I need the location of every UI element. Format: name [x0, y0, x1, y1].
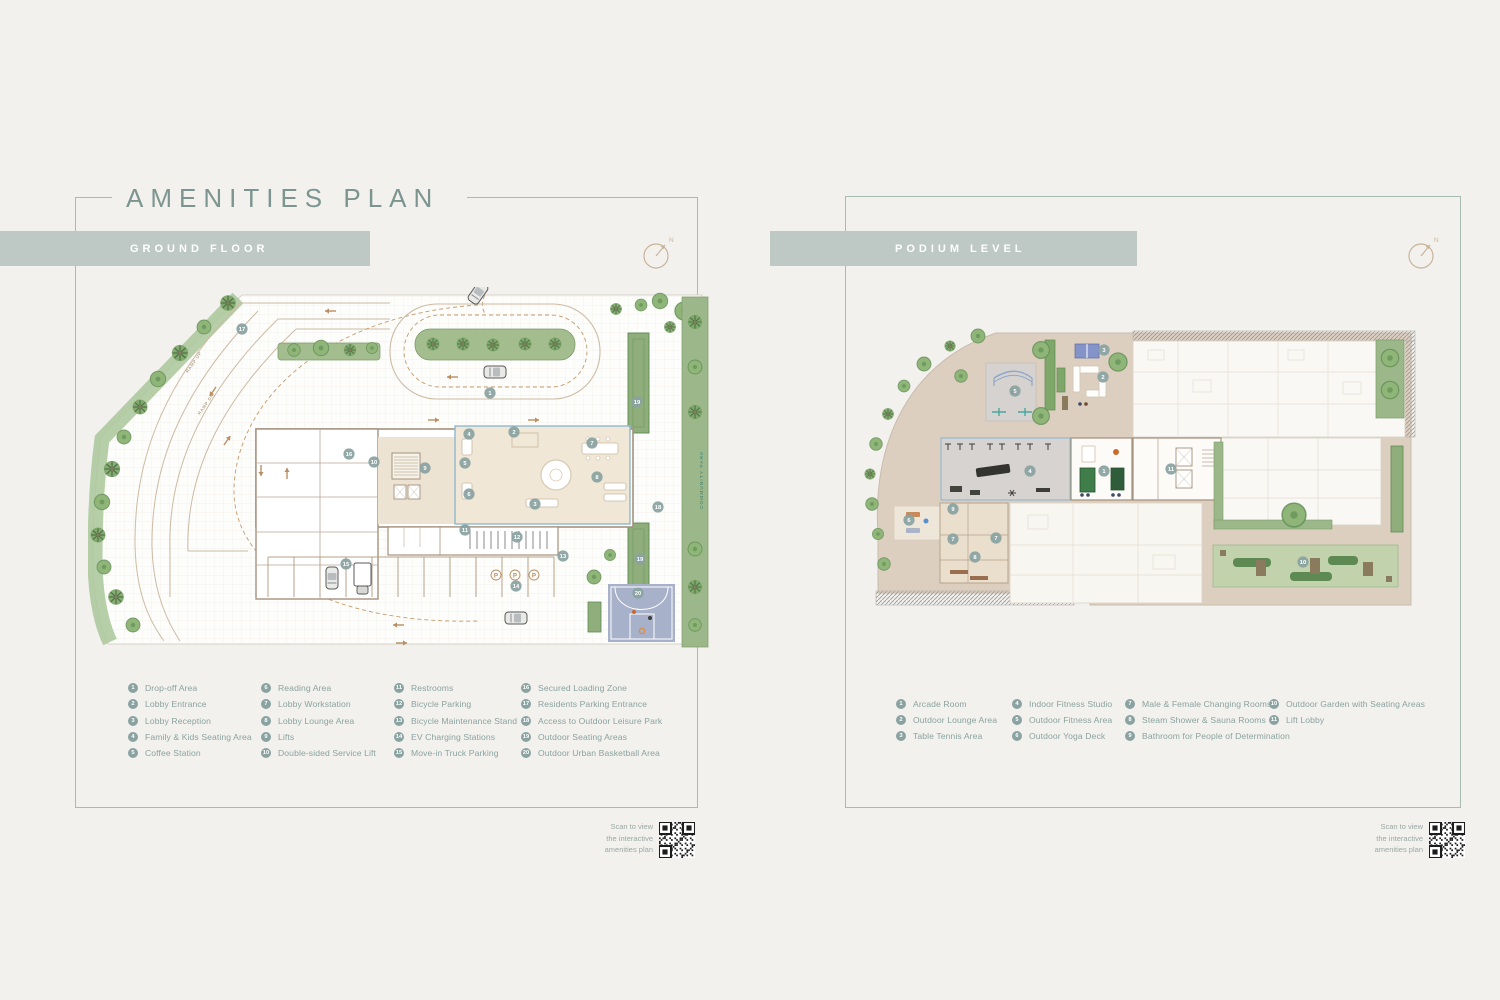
- legend-item: 9Lifts: [261, 729, 376, 745]
- qr-caption-line: amenities plan: [1343, 844, 1423, 856]
- ground-floor-banner: GROUND FLOOR: [0, 231, 370, 266]
- svg-text:12: 12: [514, 535, 520, 541]
- legend-number-badge: 5: [1012, 715, 1022, 725]
- svg-text:18: 18: [655, 505, 662, 511]
- svg-text:7: 7: [590, 441, 593, 447]
- svg-text:N: N: [669, 237, 674, 244]
- legend-label: Residents Parking Entrance: [538, 699, 647, 709]
- legend-number-badge: 5: [128, 748, 138, 758]
- plan-marker: 6: [903, 514, 914, 525]
- svg-text:16: 16: [346, 452, 353, 458]
- plan-marker: 20: [632, 587, 643, 598]
- legend-label: Outdoor Yoga Deck: [1029, 731, 1105, 741]
- legend-number-badge: 4: [1012, 699, 1022, 709]
- ground-floor-plan: RAMP UP RAMP DN: [88, 287, 710, 663]
- legend-label: EV Charging Stations: [411, 732, 495, 742]
- legend-label: Outdoor Seating Areas: [538, 732, 627, 742]
- legend-number-badge: 8: [1125, 715, 1135, 725]
- plan-marker: 5: [459, 457, 470, 468]
- legend-item: 1Arcade Room: [896, 696, 997, 712]
- legend-label: Bathroom for People of Determination: [1142, 731, 1290, 741]
- legend-label: Double-sided Service Lift: [278, 748, 376, 758]
- legend-item: 2Outdoor Lounge Area: [896, 712, 997, 728]
- qr-caption-line: Scan to view: [1343, 821, 1423, 833]
- svg-text:2: 2: [512, 430, 515, 436]
- legend-item: 7Male & Female Changing Rooms: [1125, 696, 1290, 712]
- legend-item: 2Lobby Entrance: [128, 696, 252, 712]
- svg-text:14: 14: [513, 584, 520, 590]
- legend-item: 7Lobby Workstation: [261, 696, 376, 712]
- legend-column: 7Male & Female Changing Rooms8Steam Show…: [1125, 696, 1290, 744]
- qr-caption: Scan to viewthe interactiveamenities pla…: [1343, 821, 1423, 856]
- svg-text:15: 15: [343, 562, 350, 568]
- legend-label: Male & Female Changing Rooms: [1142, 699, 1271, 709]
- svg-text:17: 17: [239, 327, 245, 333]
- legend-number-badge: 1: [896, 699, 906, 709]
- compass-icon: N: [1395, 226, 1451, 282]
- legend-number-badge: 8: [261, 716, 271, 726]
- svg-text:P: P: [494, 572, 498, 579]
- indoor-fitness-studio: [941, 438, 1070, 500]
- legend-item: 1Drop-off Area: [128, 680, 252, 696]
- table-tennis-area: [1075, 344, 1099, 358]
- legend-number-badge: 12: [394, 699, 404, 709]
- legend-number-badge: 10: [1269, 699, 1279, 709]
- legend-item: 6Outdoor Yoga Deck: [1012, 728, 1112, 744]
- plan-marker: 5: [1009, 385, 1020, 396]
- legend-number-badge: 15: [394, 748, 404, 758]
- legend-item: 6Reading Area: [261, 680, 376, 696]
- legend-item: 4Indoor Fitness Studio: [1012, 696, 1112, 712]
- legend-label: Lobby Entrance: [145, 699, 207, 709]
- legend-number-badge: 19: [521, 732, 531, 742]
- plan-marker: 19: [634, 553, 645, 564]
- svg-text:7: 7: [994, 536, 997, 542]
- plan-marker: 10: [368, 456, 379, 467]
- legend-item: 5Outdoor Fitness Area: [1012, 712, 1112, 728]
- legend-number-badge: 18: [521, 716, 531, 726]
- qr-caption-line: Scan to view: [573, 821, 653, 833]
- legend-number-badge: 1: [128, 683, 138, 693]
- svg-text:P: P: [532, 572, 536, 579]
- legend-item: 11Lift Lobby: [1269, 712, 1425, 728]
- plan-marker: 3: [1098, 344, 1109, 355]
- plan-marker: 10: [1297, 556, 1308, 567]
- legend-label: Secured Loading Zone: [538, 683, 627, 693]
- svg-text:2: 2: [1101, 375, 1104, 381]
- plan-marker: 12: [511, 531, 522, 542]
- plan-marker: 16: [343, 448, 354, 459]
- plan-marker: 13: [557, 550, 568, 561]
- legend-number-badge: 7: [1125, 699, 1135, 709]
- legend-label: Family & Kids Seating Area: [145, 732, 252, 742]
- legend-label: Drop-off Area: [145, 683, 197, 693]
- plan-marker: 2: [508, 426, 519, 437]
- legend-item: 12Bicycle Parking: [394, 696, 517, 712]
- legend-item: 11Restrooms: [394, 680, 517, 696]
- legend-item: 10Double-sided Service Lift: [261, 745, 376, 761]
- plan-marker: 17: [236, 323, 247, 334]
- svg-text:19: 19: [634, 400, 641, 406]
- legend-item: 15Move-in Truck Parking: [394, 745, 517, 761]
- svg-text:19: 19: [637, 557, 644, 563]
- legend-item: 8Steam Shower & Sauna Rooms: [1125, 712, 1290, 728]
- qr-caption-line: the interactive: [1343, 833, 1423, 845]
- legend-item: 13Bicycle Maintenance Stand: [394, 713, 517, 729]
- plan-marker: 7: [586, 437, 597, 448]
- legend-number-badge: 17: [521, 699, 531, 709]
- podium-level-banner: PODIUM LEVEL: [770, 231, 1137, 266]
- legend-label: Outdoor Lounge Area: [913, 715, 997, 725]
- car-drop-off: [484, 366, 506, 378]
- legend-label: Access to Outdoor Leisure Park: [538, 716, 662, 726]
- ground-floor-banner-label: GROUND FLOOR: [130, 243, 268, 255]
- legend-column: 10Outdoor Garden with Seating Areas11Lif…: [1269, 696, 1425, 728]
- plan-marker: 4: [1024, 465, 1035, 476]
- legend-number-badge: 11: [394, 683, 404, 693]
- compass-icon: N: [630, 226, 686, 282]
- legend-item: 20Outdoor Urban Basketball Area: [521, 745, 662, 761]
- legend-number-badge: 2: [896, 715, 906, 725]
- qr-code: [659, 822, 695, 858]
- legend-column: 4Indoor Fitness Studio5Outdoor Fitness A…: [1012, 696, 1112, 744]
- legend-item: 9Bathroom for People of Determination: [1125, 728, 1290, 744]
- legend-label: Steam Shower & Sauna Rooms: [1142, 715, 1266, 725]
- plan-marker: 11: [459, 524, 470, 535]
- svg-text:P: P: [513, 572, 517, 579]
- legend-number-badge: 7: [261, 699, 271, 709]
- legend-number-badge: 10: [261, 748, 271, 758]
- plan-marker: 14: [510, 580, 521, 591]
- legend-column: 11Restrooms12Bicycle Parking13Bicycle Ma…: [394, 680, 517, 761]
- legend-label: Reading Area: [278, 683, 331, 693]
- svg-text:7: 7: [951, 537, 954, 543]
- svg-text:20: 20: [635, 591, 641, 597]
- legend-label: Lobby Lounge Area: [278, 716, 354, 726]
- svg-text:10: 10: [1300, 560, 1306, 566]
- legend-number-badge: 14: [394, 732, 404, 742]
- legend-item: 3Lobby Reception: [128, 713, 252, 729]
- legend-label: Arcade Room: [913, 699, 967, 709]
- legend-number-badge: 2: [128, 699, 138, 709]
- plan-marker: 2: [1097, 371, 1108, 382]
- plan-marker: 6: [463, 488, 474, 499]
- legend-label: Indoor Fitness Studio: [1029, 699, 1112, 709]
- plan-marker: 1: [484, 387, 495, 398]
- qr-caption-line: the interactive: [573, 833, 653, 845]
- community-park-strip: COMMUNITY PARK: [682, 297, 708, 647]
- plan-marker: 8: [969, 551, 980, 562]
- plan-marker: 4: [463, 428, 474, 439]
- legend-number-badge: 20: [521, 748, 531, 758]
- legend-number-badge: 16: [521, 683, 531, 693]
- svg-text:COMMUNITY PARK: COMMUNITY PARK: [699, 451, 704, 510]
- legend-item: 5Coffee Station: [128, 745, 252, 761]
- svg-text:13: 13: [560, 554, 567, 560]
- lift-lobby: [1133, 438, 1221, 500]
- legend-number-badge: 6: [261, 683, 271, 693]
- legend-column: 6Reading Area7Lobby Workstation8Lobby Lo…: [261, 680, 376, 761]
- plan-marker: 18: [652, 501, 663, 512]
- legend-number-badge: 9: [261, 732, 271, 742]
- legend-label: Outdoor Garden with Seating Areas: [1286, 699, 1425, 709]
- legend-number-badge: 3: [896, 731, 906, 741]
- legend-number-badge: 4: [128, 732, 138, 742]
- svg-text:11: 11: [1168, 467, 1175, 473]
- car-bottom-lane: [505, 612, 527, 624]
- plan-marker: 9: [947, 503, 958, 514]
- plan-marker: 11: [1165, 463, 1176, 474]
- legend-item: 18Access to Outdoor Leisure Park: [521, 713, 662, 729]
- plan-marker: 8: [591, 471, 602, 482]
- outdoor-yoga-deck: [894, 506, 940, 540]
- legend-label: Lift Lobby: [1286, 715, 1324, 725]
- page-title: AMENITIES PLAN: [112, 183, 467, 214]
- plan-marker: 15: [340, 558, 351, 569]
- legend-label: Outdoor Fitness Area: [1029, 715, 1112, 725]
- legend-number-badge: 6: [1012, 731, 1022, 741]
- plan-marker: 3: [529, 498, 540, 509]
- legend-item: 14EV Charging Stations: [394, 729, 517, 745]
- legend-label: Bicycle Parking: [411, 699, 471, 709]
- qr-code: [1429, 822, 1465, 858]
- legend-label: Move-in Truck Parking: [411, 748, 499, 758]
- qr-caption-line: amenities plan: [573, 844, 653, 856]
- legend-label: Table Tennis Area: [913, 731, 982, 741]
- podium-level-banner-label: PODIUM LEVEL: [895, 243, 1026, 255]
- legend-label: Lifts: [278, 732, 294, 742]
- legend-label: Coffee Station: [145, 748, 201, 758]
- qr-caption: Scan to viewthe interactiveamenities pla…: [573, 821, 653, 856]
- svg-text:10: 10: [371, 460, 377, 466]
- legend-number-badge: 11: [1269, 715, 1279, 725]
- legend-item: 8Lobby Lounge Area: [261, 713, 376, 729]
- plan-marker: 7: [990, 532, 1001, 543]
- legend-label: Lobby Reception: [145, 716, 211, 726]
- legend-label: Lobby Workstation: [278, 699, 351, 709]
- plan-marker: 1: [1098, 465, 1109, 476]
- plan-marker: 9: [419, 462, 430, 473]
- legend-column: 1Drop-off Area2Lobby Entrance3Lobby Rece…: [128, 680, 252, 761]
- legend-item: 16Secured Loading Zone: [521, 680, 662, 696]
- svg-text:11: 11: [462, 528, 469, 534]
- plan-marker: 7: [947, 533, 958, 544]
- legend-label: Bicycle Maintenance Stand: [411, 716, 517, 726]
- legend-number-badge: 3: [128, 716, 138, 726]
- legend-item: 3Table Tennis Area: [896, 728, 997, 744]
- legend-number-badge: 9: [1125, 731, 1135, 741]
- legend-number-badge: 13: [394, 716, 404, 726]
- legend-item: 10Outdoor Garden with Seating Areas: [1269, 696, 1425, 712]
- legend-item: 17Residents Parking Entrance: [521, 696, 662, 712]
- svg-text:N: N: [1434, 237, 1439, 244]
- legend-column: 1Arcade Room2Outdoor Lounge Area3Table T…: [896, 696, 997, 744]
- legend-label: Restrooms: [411, 683, 453, 693]
- legend-label: Outdoor Urban Basketball Area: [538, 748, 660, 758]
- legend-column: 16Secured Loading Zone17Residents Parkin…: [521, 680, 662, 761]
- plan-marker: 19: [631, 396, 642, 407]
- legend-item: 19Outdoor Seating Areas: [521, 729, 662, 745]
- podium-level-plan: 12345677891011: [858, 320, 1458, 620]
- legend-item: 4Family & Kids Seating Area: [128, 729, 252, 745]
